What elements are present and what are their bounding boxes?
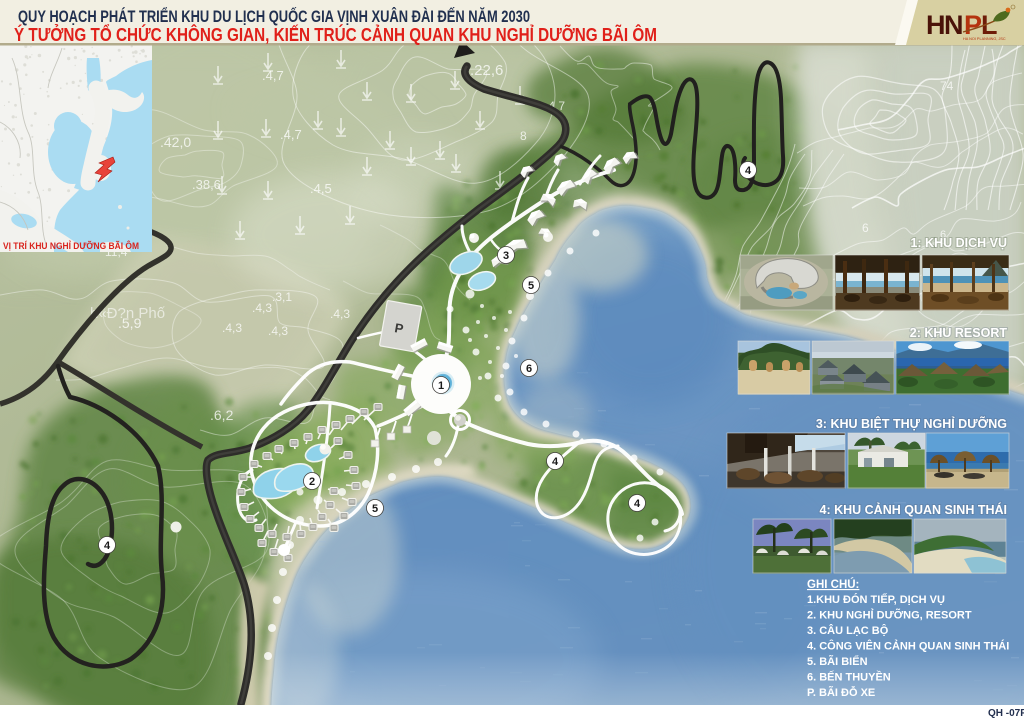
svg-text:3: 3 [503,250,509,262]
svg-text:5. BÃI BIỂN: 5. BÃI BIỂN [807,655,868,668]
svg-text:6. BẾN THUYỀN: 6. BẾN THUYỀN [807,671,891,684]
svg-text:5: 5 [372,503,378,515]
svg-text:.4,3: .4,3 [252,301,272,315]
svg-text:5: 5 [528,280,534,292]
svg-text:HA NOI PLANNING, JSC: HA NOI PLANNING, JSC [963,37,1006,41]
svg-text:QH -07F: QH -07F [988,708,1024,719]
svg-text:GHI CHÚ:: GHI CHÚ: [807,578,859,591]
svg-text:.4,3: .4,3 [222,321,242,335]
svg-text:.4,3: .4,3 [268,324,288,338]
svg-text:.22,6: .22,6 [470,62,503,79]
svg-text:HN: HN [926,10,962,40]
svg-text:4: 4 [634,498,641,510]
svg-text:VỊ TRÍ KHU NGHỈ DƯỠNG BÃI ÔM: VỊ TRÍ KHU NGHỈ DƯỠNG BÃI ÔM [3,240,139,252]
svg-text:Ý TƯỞNG TỔ CHỨC KHÔNG GIAN, KI: Ý TƯỞNG TỔ CHỨC KHÔNG GIAN, KIẾN TRÚC CẢ… [14,24,657,45]
svg-text:6: 6 [526,363,532,375]
svg-text:P. BÃI ĐỖ XE: P. BÃI ĐỖ XE [807,686,875,699]
svg-text:4: 4 [104,540,111,552]
svg-text:.4,7: .4,7 [280,127,302,142]
svg-text:.4,3: .4,3 [330,307,350,321]
svg-text:4: 4 [552,456,559,468]
svg-text:.6,2: .6,2 [210,407,234,423]
svg-text:74: 74 [940,79,954,93]
svg-text:4: KHU CẢNH QUAN SINH THÁI: 4: KHU CẢNH QUAN SINH THÁI [820,502,1008,517]
svg-text:2. KHU NGHỈ DƯỠNG, RESORT: 2. KHU NGHỈ DƯỠNG, RESORT [807,609,972,622]
svg-text:.42,0: .42,0 [160,134,191,150]
svg-text:2: 2 [309,476,315,488]
svg-text:4. CÔNG VIÊN CẢNH QUAN SINH TH: 4. CÔNG VIÊN CẢNH QUAN SINH THÁI [807,640,1009,653]
svg-text:.3,1: .3,1 [272,290,292,304]
svg-text:.38,6: .38,6 [192,177,221,192]
svg-text:1: KHU DỊCH VỤ: 1: KHU DỊCH VỤ [910,236,1007,250]
svg-text:QUY HOẠCH PHÁT TRIỂN KHU DU LỊ: QUY HOẠCH PHÁT TRIỂN KHU DU LỊCH QUỐC GI… [18,6,530,26]
svg-text:3. CÂU LẠC BỘ: 3. CÂU LẠC BỘ [807,624,889,637]
svg-text:1: 1 [438,380,444,392]
svg-text:3: KHU BIỆT THỰ NGHỈ DƯỠNG: 3: KHU BIỆT THỰ NGHỈ DƯỠNG [816,416,1007,431]
svg-text:.4,7: .4,7 [262,68,284,83]
svg-text:8: 8 [520,129,527,143]
svg-text:2: KHU RESORT: 2: KHU RESORT [910,326,1008,340]
svg-text:P: P [964,10,982,40]
svg-text:6: 6 [862,221,869,235]
svg-text:1.KHU ĐÓN TIẾP, DỊCH VỤ: 1.KHU ĐÓN TIẾP, DỊCH VỤ [807,593,945,606]
svg-text:4: 4 [745,165,752,177]
svg-text:.4,5: .4,5 [310,181,332,196]
